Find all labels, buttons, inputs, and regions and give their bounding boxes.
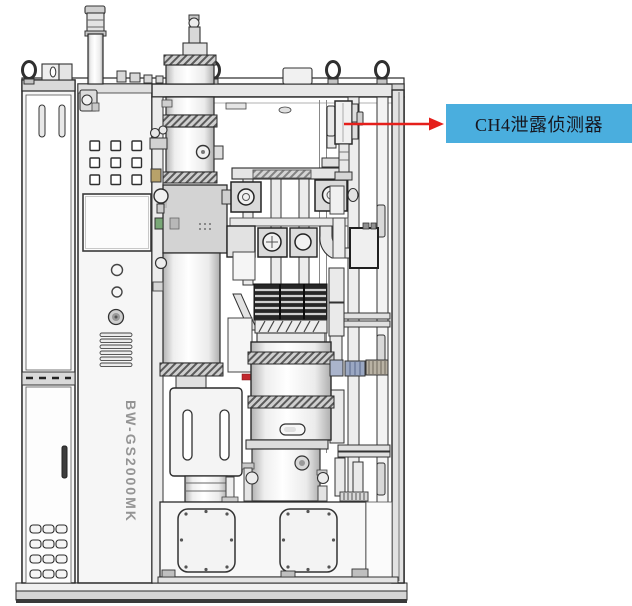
solenoid-cluster [330,360,388,376]
round-button [112,265,123,276]
fin-stack [254,284,327,320]
round-button [112,287,122,297]
model-text: BW-GS2000MK [123,400,139,523]
column-gray-box [163,185,227,253]
cabinet-drawing: BW-GS2000MK [0,0,632,606]
column-top-cylinder [164,15,216,84]
front-panel: BW-GS2000MK [78,84,152,583]
cabinet-base [16,583,407,603]
green-fitting [155,218,163,229]
bottom-panel [158,502,398,583]
diagram-canvas: BW-GS2000MK [0,0,632,606]
door-slot-handle [39,105,45,137]
slot-box [170,388,242,476]
red-marker [242,374,251,380]
roof-low-box [283,68,312,84]
arrow-head [429,118,444,131]
roof-box [59,64,72,80]
small-roof-caps [117,71,163,83]
door-handle [62,446,67,478]
access-cover [178,509,235,572]
keypad [90,141,142,185]
knurled-knob [109,310,124,325]
door-slot-handle [59,105,65,137]
right-wall-box [350,228,378,268]
fan-blades [255,320,327,333]
ch4-detector-callout-label: CH4泄露侦测器 [446,104,632,143]
display-screen [83,194,151,251]
left-cabinet [22,80,75,583]
left-cabinet-lower-door [26,387,71,583]
hinge-fitting [80,90,99,111]
access-cover [280,509,337,572]
brass-valve [151,169,161,182]
gauge [154,189,168,203]
vent-pipe [85,6,106,84]
bottom-finned-fitting [340,492,368,501]
